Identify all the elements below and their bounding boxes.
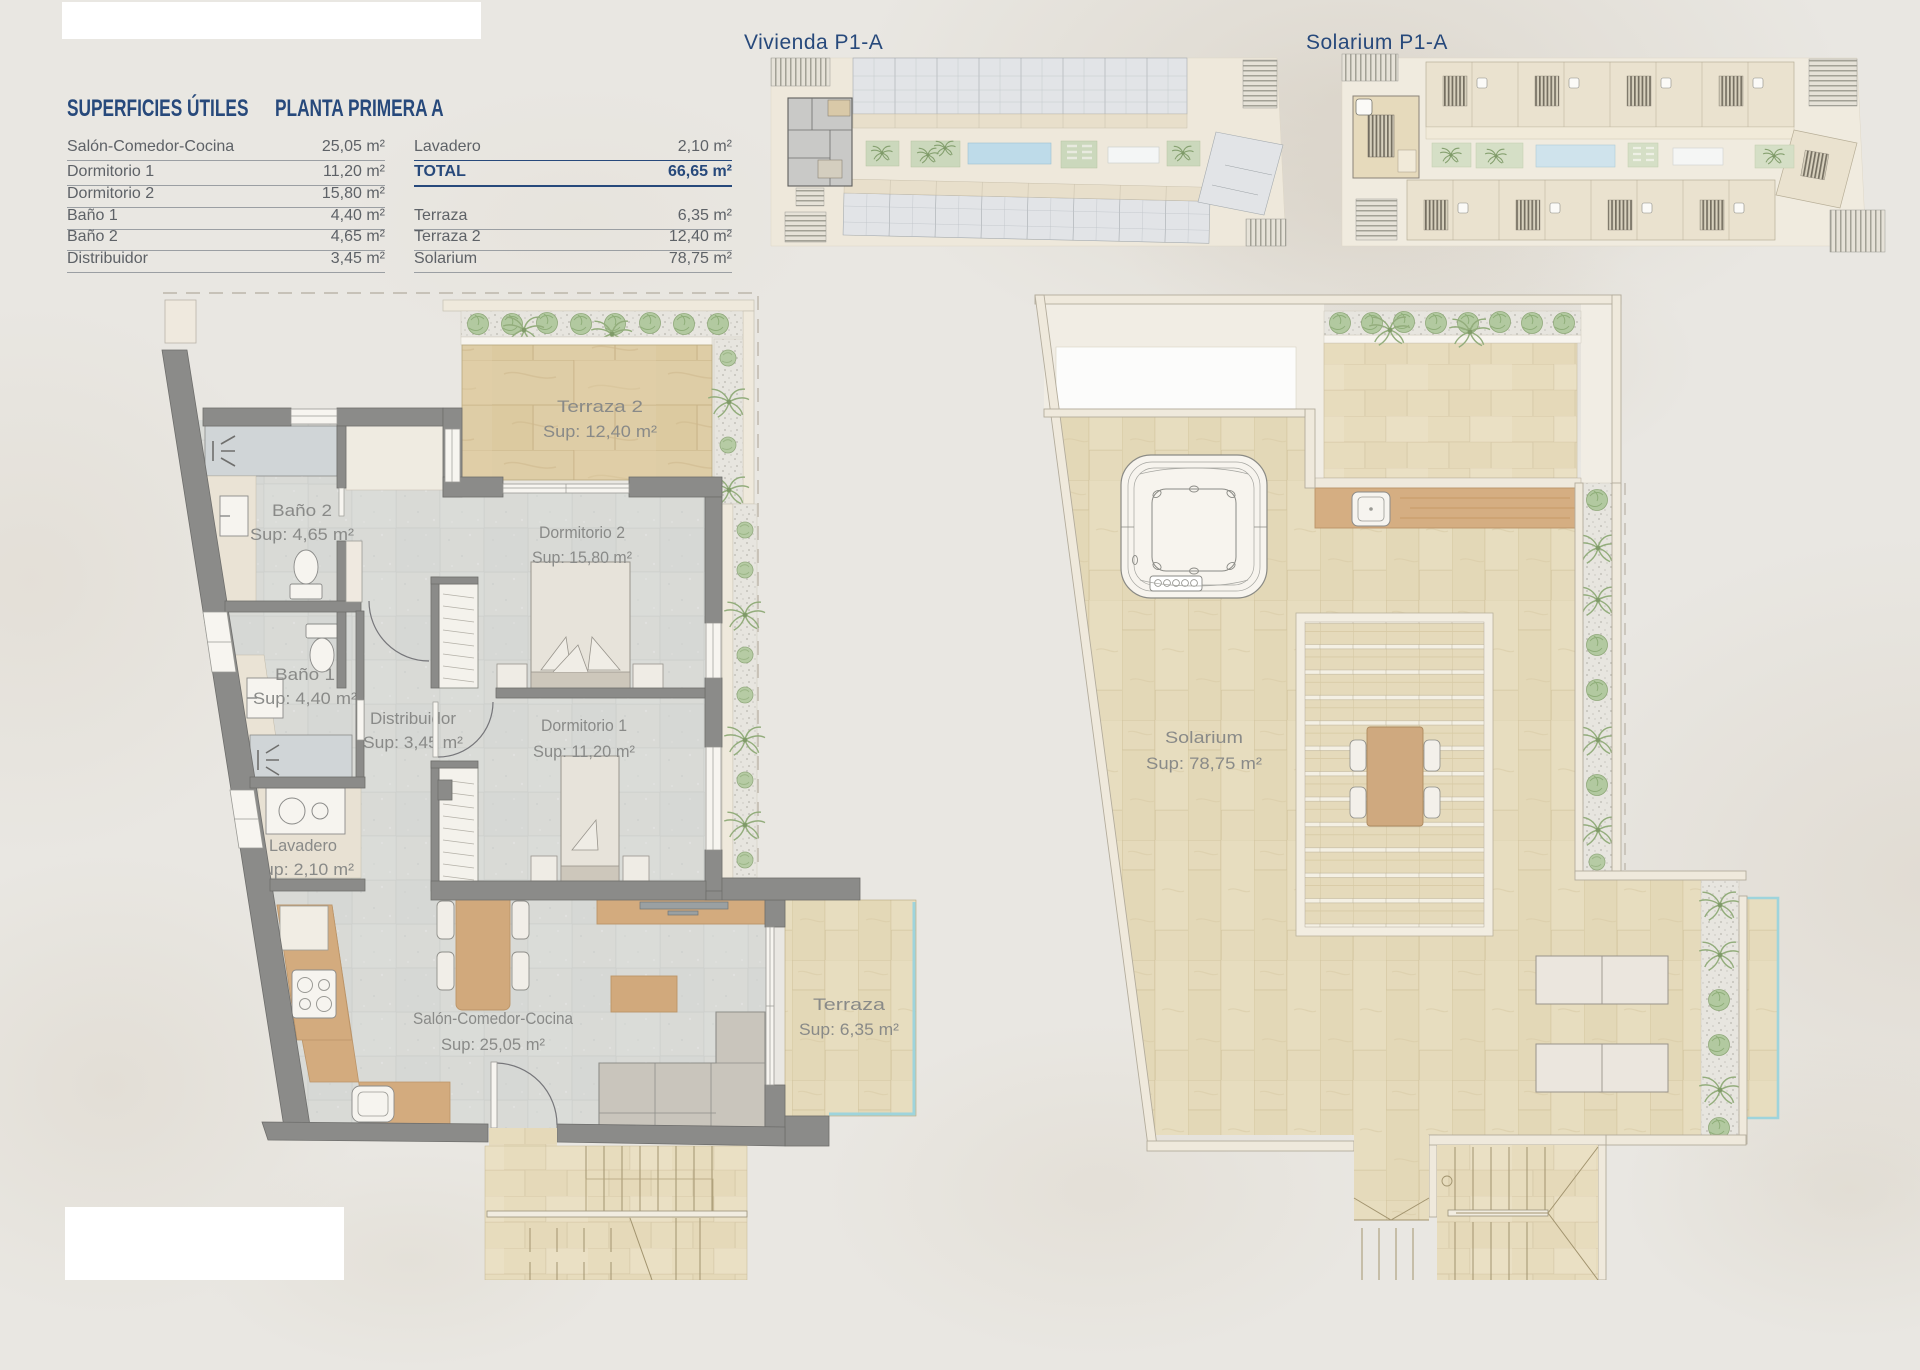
svg-text:Sup: 12,40 m²: Sup: 12,40 m²: [543, 422, 657, 441]
svg-text:Sup: 25,05 m²: Sup: 25,05 m²: [441, 1035, 545, 1054]
svg-text:Salón-Comedor-Cocina: Salón-Comedor-Cocina: [413, 1009, 573, 1028]
svg-text:Sup: 4,40 m²: Sup: 4,40 m²: [253, 689, 357, 708]
svg-text:Dormitorio 2: Dormitorio 2: [539, 523, 625, 542]
svg-text:Lavadero: Lavadero: [269, 836, 337, 855]
svg-text:Baño 1: Baño 1: [275, 665, 335, 684]
svg-text:Dormitorio 1: Dormitorio 1: [541, 716, 627, 735]
svg-text:Sup: 3,45 m²: Sup: 3,45 m²: [363, 733, 463, 752]
svg-text:Sup: 78,75 m²: Sup: 78,75 m²: [1146, 754, 1262, 773]
svg-text:Distribuidor: Distribuidor: [370, 709, 456, 728]
svg-text:Baño 2: Baño 2: [272, 501, 332, 520]
svg-text:Terraza 2: Terraza 2: [557, 397, 643, 416]
svg-text:Sup: 11,20 m²: Sup: 11,20 m²: [533, 742, 635, 761]
svg-text:Terraza: Terraza: [813, 995, 886, 1014]
svg-text:Sup: 6,35 m²: Sup: 6,35 m²: [799, 1020, 899, 1039]
svg-text:Sup: 15,80 m²: Sup: 15,80 m²: [532, 548, 632, 567]
svg-text:Solarium: Solarium: [1165, 728, 1243, 747]
